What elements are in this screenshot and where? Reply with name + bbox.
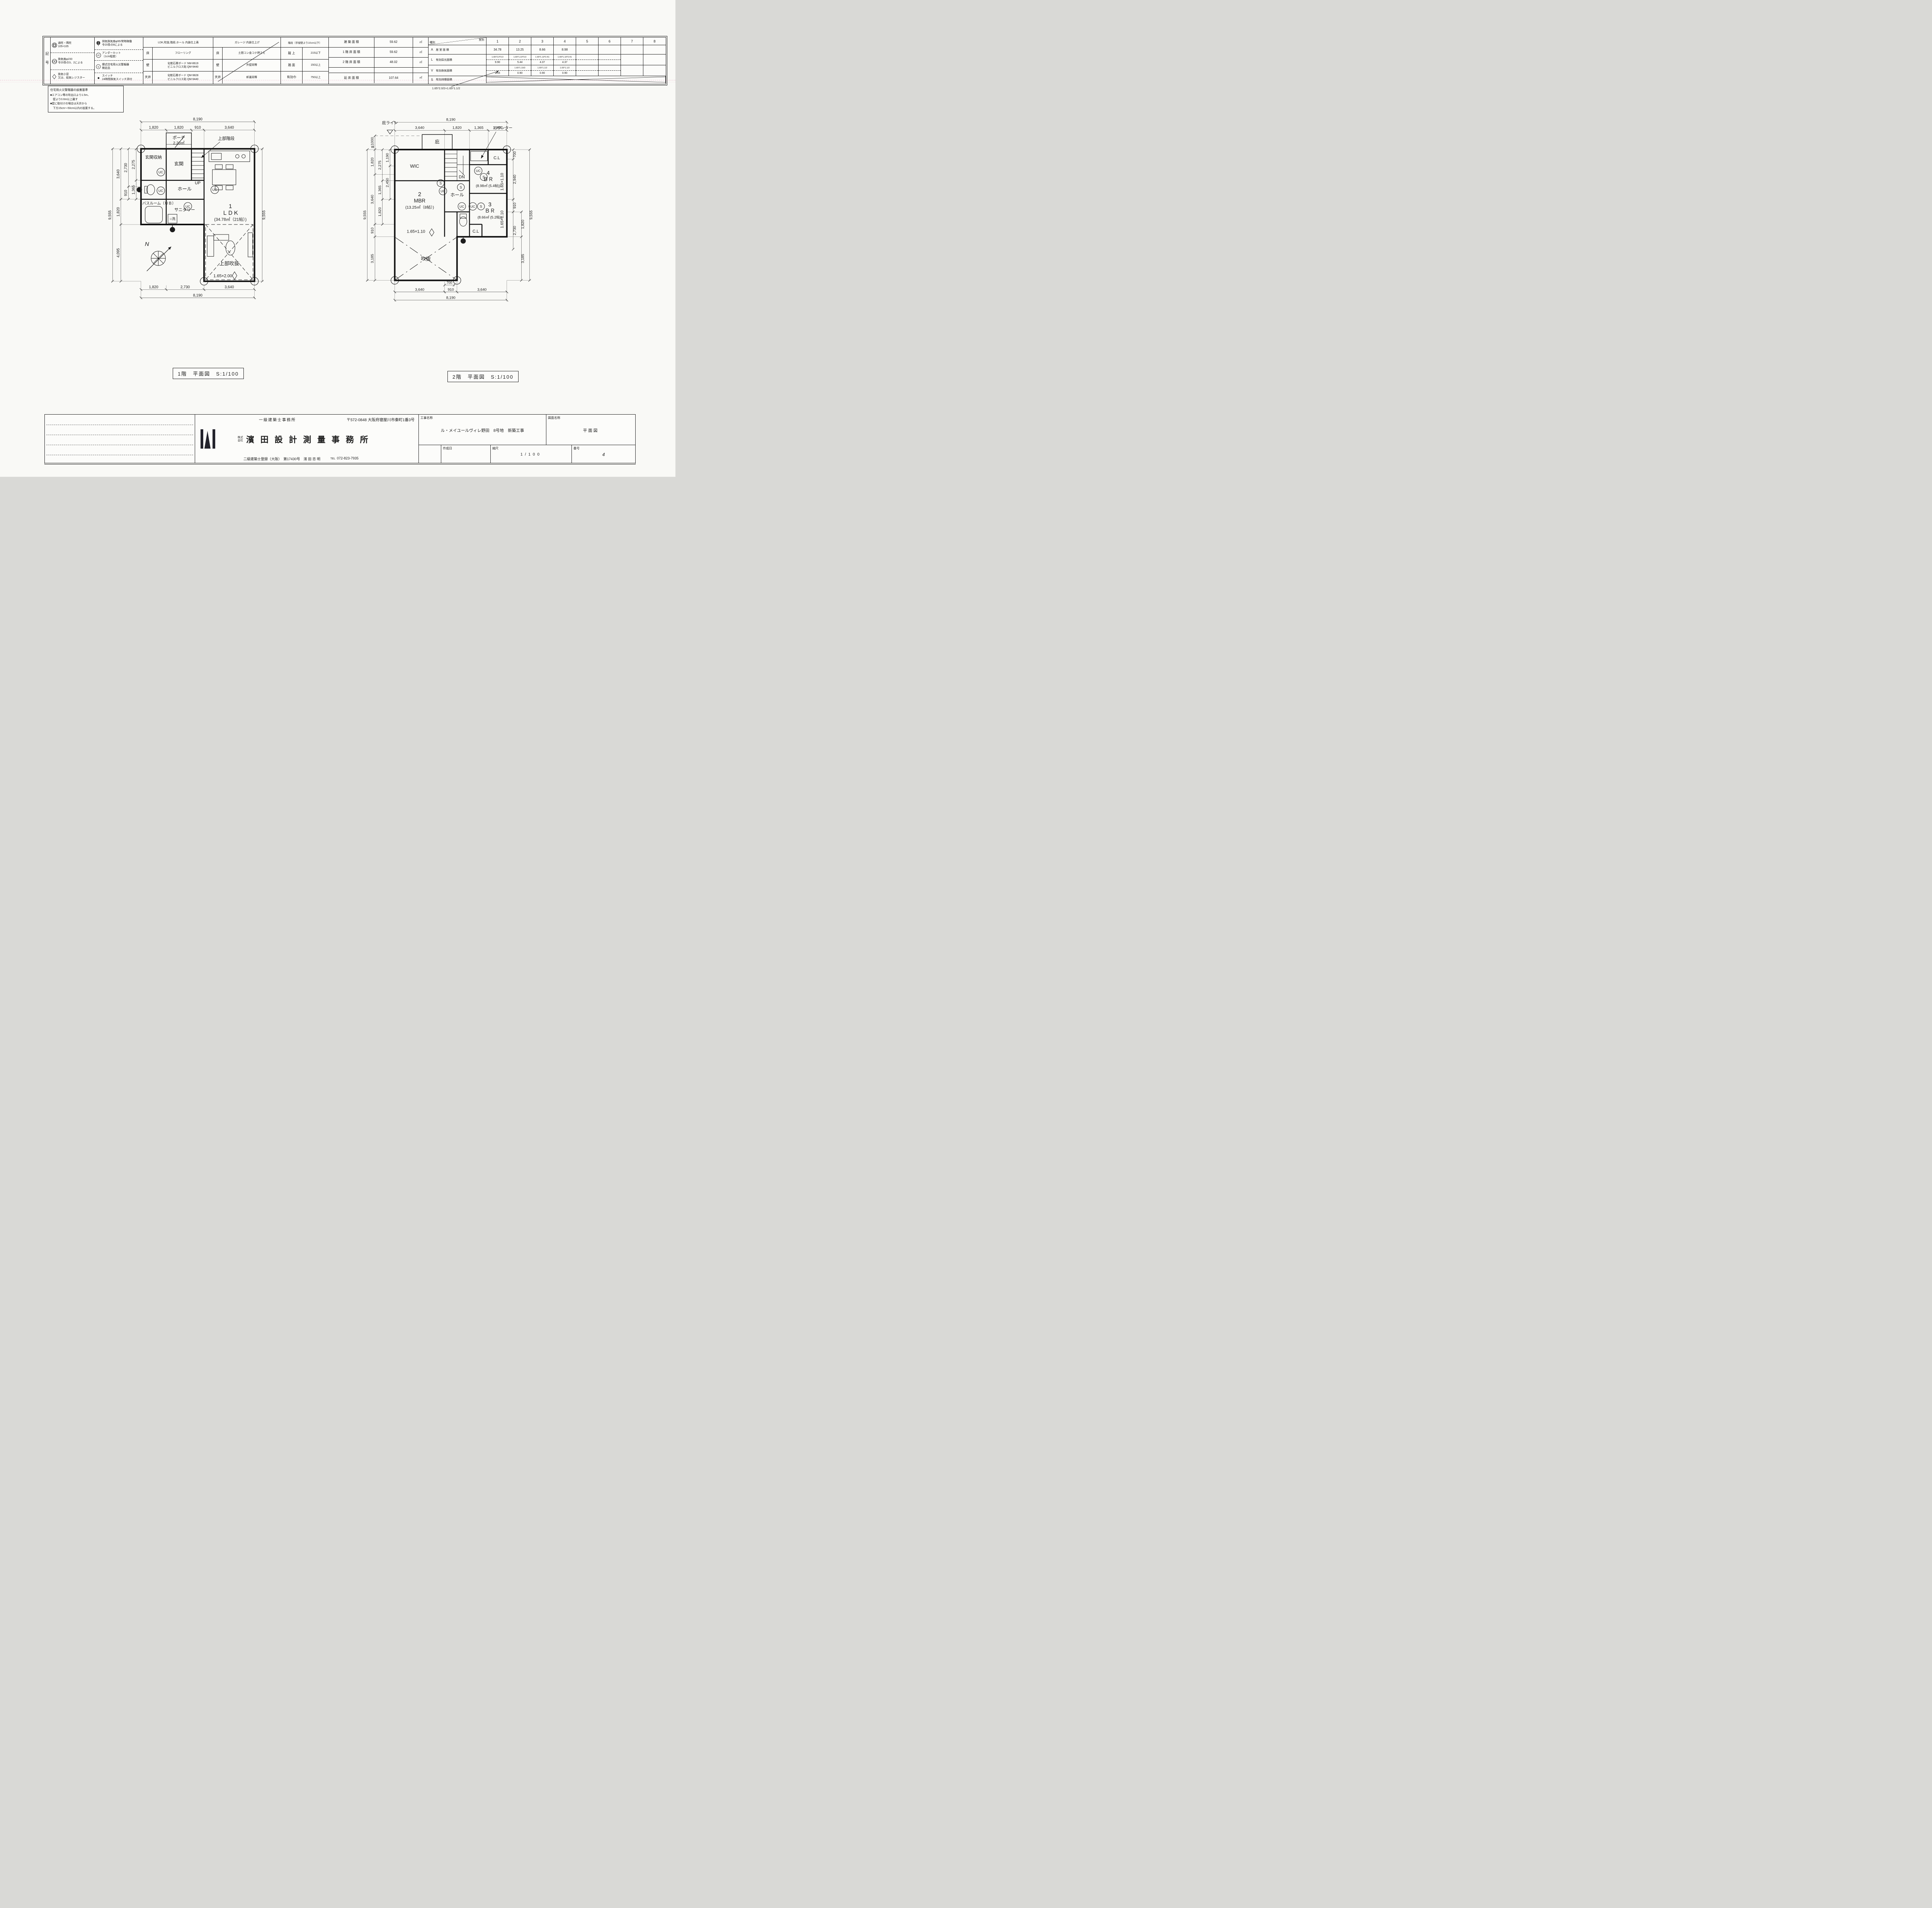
fire-alarm-note-line: ■壁に取付けの場合は天井から [50, 102, 121, 106]
f2-room-labels: 庇ライン 庇 カウンター C.L WIC DN ホール 2 MBR (13.25… [382, 121, 513, 262]
dim-label: 1,820 [370, 157, 374, 167]
area-row-label: 建 築 面 積 [329, 37, 374, 48]
undercut-symbol-icon: UC [458, 202, 466, 210]
header-tables-strip: 記号 通柱・隅柱105×105 換気扇φ150令20条の3、2による [44, 37, 666, 84]
ventilation-cell [621, 65, 643, 76]
dim-label: 910 [370, 228, 374, 234]
stove-burner [236, 155, 239, 158]
vent-window-symbol-icon [429, 229, 434, 236]
room-area-value: 13.25 [509, 45, 531, 54]
ventilation-cell: 1.65*1.1/20.90 [554, 65, 576, 76]
dim-label: 700 [447, 281, 452, 285]
vent-window-symbol-icon [51, 74, 57, 79]
dining-chair [226, 165, 233, 169]
schedule-row-label: A居 室 面 積 [429, 45, 486, 54]
lighting-cell [643, 54, 666, 65]
stairs-row-label: 蹴 上 [281, 48, 303, 60]
finish-row-value: 外壁同等 [223, 60, 281, 71]
dim-label: 1,820 [149, 285, 158, 289]
f1-exhaust-fans [137, 187, 175, 232]
exhaust-fan-icon [170, 227, 175, 232]
drawing-name: 平面図 [546, 427, 635, 433]
legend-text: 換気扇φ150令20条の3、2による [58, 58, 83, 65]
stove-burner [242, 155, 245, 158]
room-label: UP [195, 181, 201, 185]
room-label: 4 [486, 170, 490, 177]
dim-label: 1,820 [452, 126, 462, 130]
dim-label: 1,190 [385, 153, 389, 162]
legend-text: スイッチ24時間換気スイッチ添付 [102, 75, 132, 82]
north-label: N [145, 241, 149, 247]
symbol-legend-table: 記号 通柱・隅柱105×105 換気扇φ150令20条の3、2による [44, 37, 143, 84]
switch-symbol-icon [95, 76, 101, 80]
lighting-cell: 1.65*1.10*2.414.37 [554, 54, 576, 65]
undercut-symbol-icon: UC [474, 167, 482, 175]
lighting-cell [599, 54, 621, 65]
svg-text:UC: UC [470, 204, 475, 208]
room-label: サニタリー [174, 208, 195, 213]
counter [471, 151, 488, 161]
toilet [459, 217, 467, 226]
area-blank [329, 68, 374, 73]
fan150-symbol-icon [51, 59, 57, 64]
legend-column-a: 通柱・隅柱105×105 換気扇φ150令20条の3、2による [51, 37, 95, 84]
room-label: 上部階段 [218, 136, 235, 141]
room-label: ホール [178, 186, 192, 192]
room-label: DN [459, 175, 465, 180]
stair-down-arrow [459, 156, 464, 175]
legend-text: 通柱・隅柱105×105 [58, 42, 71, 49]
dim-label: ≦1000 [370, 137, 374, 148]
dim-label: 8,190 [446, 117, 456, 122]
room-label: 吹抜 [421, 256, 431, 262]
room-label: (13.25㎡（8帖）) [405, 205, 434, 210]
svg-text:UC: UC [158, 189, 163, 193]
dim-label: 9,555 [363, 210, 367, 219]
room-label: ＬＤＫ [222, 210, 239, 216]
room-label: 上部吹抜 [219, 260, 240, 266]
room-label: 庇ライン [382, 121, 398, 126]
company-logo [195, 415, 221, 463]
kind-label: 種別 [430, 41, 435, 44]
room-label: 3 [488, 202, 492, 208]
f1-upper-void [206, 224, 253, 280]
exhaust-fan-icon [461, 238, 466, 243]
finish-row-label: 壁 [213, 60, 223, 71]
stairs-row-label: 踏 面 [281, 60, 303, 71]
exhaust-fan-icon [137, 187, 142, 192]
number-label: 番号 [573, 446, 580, 451]
dim-label: 2,730 [513, 226, 517, 235]
legend-row: 排気換気扇φ95/常時稼働令20条の8による [95, 37, 143, 50]
ldk-finish-title: LDK,吹抜,階段,ホール 内装仕上表 [143, 37, 213, 48]
revision-line [46, 425, 193, 425]
kabushiki-kaisha: 株式会社 [238, 436, 243, 442]
project-name: ル・メイユールヴィレ野田 8号地 新築工事 [419, 427, 546, 433]
title-block: 一級建築士事務所 〒572-0848 大阪府寝屋川市秦町1番3号 株式会社 濱 … [44, 414, 636, 464]
ventilation-cell [643, 65, 666, 76]
smoke-alarm-symbol-icon: S [478, 203, 485, 210]
legend-row: 換気扇φ150令20条の3、2による [51, 53, 94, 70]
number-cell: 番号 4 [572, 445, 635, 463]
created-label: 作成日 [443, 446, 452, 451]
dim-label: 3,640 [224, 285, 234, 289]
dim-label: 2,275 [378, 160, 382, 170]
lighting-cell: 1.65*2.0*3.09.90 [486, 54, 509, 65]
room-label: 2 [418, 192, 421, 198]
room-area-value: 34.78 [486, 45, 509, 54]
dim-label: 1,820 [378, 207, 382, 216]
stairs-row-value: 215以下 [303, 48, 329, 60]
scan-artifact-line [0, 82, 675, 82]
area-row-value: 59.62 [374, 37, 413, 48]
undercut-symbol-icon: UC [439, 187, 447, 195]
company-address: 〒572-0848 大阪府寝屋川市秦町1番3号 [347, 417, 415, 422]
lighting-cell: 1.65*1.10*3.05.44 [509, 54, 531, 65]
kitchen-sink [211, 153, 221, 160]
fire-alarm-note-line: 壁より0.6m以上離す [50, 97, 121, 102]
dim-label: 3,185 [370, 254, 374, 263]
dim-label: 1,820 [116, 207, 121, 216]
fire-alarm-note-line: ■エアコン等の吹出口より1.5m、 [50, 93, 121, 97]
title-block-right: 工事名称 ル・メイユールヴィレ野田 8号地 新築工事 図面名称 平面図 作成日 … [418, 415, 635, 463]
dim-label: 910 [195, 126, 201, 130]
compass [147, 247, 171, 271]
lighting-cell: 1.65*1.10*2.414.37 [531, 54, 554, 65]
ventilation-cell: 1.65*1.1/20.90 [531, 65, 554, 76]
room-area-value [576, 45, 599, 54]
legend-text: 煙式住宅用火災警報器検定品 [102, 63, 129, 70]
area-blank [374, 68, 413, 73]
dim-label: 1,820 [174, 126, 184, 130]
ventilation-cell [599, 65, 621, 76]
svg-text:UC: UC [476, 169, 481, 173]
revision-line [46, 455, 193, 455]
blank-cell [419, 445, 441, 463]
room-label: 庇 [435, 139, 440, 145]
scale-value: 1/100 [491, 452, 571, 457]
finish-row-value: フローリング [153, 48, 213, 60]
ventilation-cell: 1.65*1.10/20.90 [509, 65, 531, 76]
dim-label: 3,640 [415, 126, 424, 130]
drawing-name-cell: 図面名称 平面図 [546, 415, 635, 445]
telephone: TEL072-823-7935 [330, 456, 359, 461]
revision-panel [45, 415, 195, 463]
room-label: カウンター [493, 126, 513, 131]
fire-alarm-note-line: 下方15cm〜50cm以内の設置する。 [50, 106, 121, 111]
schedule-col: 1 [486, 37, 509, 45]
room-label: 1 [229, 203, 232, 210]
window-size-label: 1.65×1.10 [500, 173, 505, 190]
dim-label: 8,190 [193, 294, 202, 298]
legend-row: S 煙式住宅用火災警報器検定品 [95, 61, 143, 73]
revision-line [46, 435, 193, 435]
floor2-plan-drawing: 8,190 3,640 1,820 1,365 1,365 9,555 ≦100… [356, 114, 539, 306]
dim-label: 1,365 [378, 185, 382, 195]
window-size-label: 1.65×1.10 [407, 230, 425, 234]
room-label: 玄関 [174, 161, 184, 167]
ventilation-cell [576, 65, 599, 76]
f2-symbols: S UC S UC S UC [387, 130, 487, 236]
dim-label: 2,275 [131, 160, 136, 169]
drawing-sheet: 記号 通柱・隅柱105×105 換気扇φ150令20条の3、2による [0, 0, 675, 477]
company-name: 濱 田 設 計 測 量 事 務 所 [246, 434, 370, 445]
f2-exhaust-fans [461, 237, 466, 244]
dining-table [213, 170, 236, 185]
registration: 二級建築士登録（大阪） 第17430号 濱 田 忠 明 [243, 456, 320, 461]
undercut-symbol-icon: UC [469, 202, 477, 210]
svg-text:S: S [98, 66, 99, 68]
area-row-unit: ㎡ [413, 58, 429, 68]
dim-label: 2,940 [513, 175, 517, 184]
legend-row: 換気小窓又は、給気レジスター [51, 70, 94, 83]
floor1-plan-drawing: 8,190 1,820 1,820 910 3,640 9,555 3,640 … [104, 114, 278, 306]
office-type: 一級建築士事務所 [259, 417, 296, 422]
fire-alarm-note-title: 住宅用火災警報器の設置基準 [50, 88, 121, 92]
scale-label: 縮尺 [492, 446, 498, 451]
dim-label: 3,640 [415, 287, 424, 292]
room-label: バスルーム（ＵＢ） [142, 201, 176, 206]
toilet [147, 185, 155, 195]
legend-text: アンダーカット（1cm程度） [102, 52, 121, 59]
undercut-symbol-icon: UC [157, 168, 165, 176]
living-table [226, 241, 235, 255]
stairs-table: 階段（手摺壁より10cm以下） 蹴 上 215以下 踏 面 150以上 有効巾 … [281, 37, 329, 84]
room-label: (8.66㎡ (5.2帖)) [478, 215, 502, 219]
undercut-symbol-icon: UC [95, 53, 101, 58]
dim-label: 8,190 [193, 117, 202, 121]
schedule-col: 5 [576, 37, 599, 45]
area-row-label: 2 階 床 面 積 [329, 58, 374, 68]
room-area-value [621, 45, 643, 54]
dim-label: 3,185 [521, 254, 525, 263]
room-label: (34.78㎡（21帖）) [214, 217, 247, 222]
svg-text:UC: UC [158, 170, 163, 174]
room-area-value: 8.66 [531, 45, 554, 54]
dim-label: 3,640 [224, 126, 234, 130]
area-row-label: 1 階 床 面 積 [329, 48, 374, 58]
dim-label: 8,190 [446, 296, 456, 300]
window-size-label: 1.65×1.10 [500, 211, 505, 228]
vent-window-symbol-icon [232, 272, 237, 279]
room-label: C.L [473, 229, 479, 234]
room-label: ホール [451, 192, 464, 197]
room-area-value [643, 45, 666, 54]
sofa [214, 235, 229, 240]
finish-row-label: 床 [213, 48, 223, 60]
room-label: 玄関収納 [145, 155, 162, 160]
lighting-cell [576, 54, 599, 65]
room-number-label: 室別 [479, 38, 484, 42]
room-label: MBR [414, 198, 425, 204]
svg-text:S: S [480, 205, 482, 209]
legend-row: UC アンダーカット（1cm程度） [95, 50, 143, 61]
project-label: 工事名称 [420, 416, 433, 420]
dim-label: 2,730 [180, 285, 190, 289]
finish-row-label: 壁 [143, 60, 153, 71]
dim-label: 910 [448, 287, 454, 292]
room-area-value [599, 45, 621, 54]
floor1-caption: 1階 平面図 S:1/100 [173, 368, 244, 379]
smoke-alarm-symbol-icon: S [457, 184, 464, 190]
svg-text:UC: UC [212, 188, 217, 192]
dim-label: 3,640 [477, 287, 486, 292]
schedule-col: 6 [599, 37, 621, 45]
annotation-leader-line [444, 69, 506, 87]
room-area-value: 8.98 [554, 45, 576, 54]
undercut-symbol-icon: UC [157, 187, 165, 194]
dim-label: 910 [513, 202, 517, 209]
room-label: (8.98㎡ (5.4帖)) [476, 184, 500, 188]
f2-dimension-labels: 8,190 3,640 1,820 1,365 1,365 9,555 ≦100… [363, 117, 533, 300]
svg-text:S: S [439, 181, 442, 185]
garage-finish-title: ガレージ 内装仕上げ [213, 37, 281, 48]
ldk-finish-table: LDK,吹抜,階段,ホール 内装仕上表 床 フローリング 壁 化粧石膏ボード N… [143, 37, 213, 84]
sofa [207, 236, 214, 256]
dim-label: 9,555 [108, 210, 112, 219]
schedule-row-label: L有効採光面積 [429, 54, 486, 65]
building-area-table: 建 築 面 積 59.62 ㎡ 1 階 床 面 積 59.62 ㎡ 2 階 床 … [329, 37, 429, 84]
svg-text:UC: UC [440, 189, 445, 193]
bathtub [145, 206, 163, 223]
legend-text: 換気小窓又は、給気レジスター [58, 73, 85, 80]
tv-board [248, 233, 253, 257]
dim-label: 3,640 [116, 169, 121, 179]
stairs-row-value: 150以上 [303, 60, 329, 71]
kitchen-counter [209, 151, 250, 162]
dim-label: 700 [513, 151, 517, 158]
room-label: ＢＲ [485, 208, 495, 214]
hamada-logo-icon [200, 428, 216, 450]
dim-label: 2,730 [124, 163, 128, 172]
schedule-col: 7 [621, 37, 643, 45]
f2-fixtures [459, 151, 487, 226]
scale-cell: 縮尺 1/100 [491, 445, 572, 463]
svg-text:UC: UC [459, 204, 464, 208]
finish-row-value: 土間コン金コテ押さえ [223, 48, 281, 60]
legend-column-b: 排気換気扇φ95/常時稼働令20条の8による UC アンダーカット（1cm程度）… [95, 37, 143, 84]
dim-label: 1,820 [521, 220, 525, 229]
room-label: ＢＲ [483, 177, 493, 182]
number-value: 4 [572, 452, 635, 457]
svg-text:UC: UC [97, 54, 100, 57]
dim-label: 1,365 [131, 185, 136, 194]
room-label: ポーチ [173, 136, 185, 140]
schedule-col: 2 [509, 37, 531, 45]
area-row-value: 59.62 [374, 48, 413, 58]
svg-text:S: S [460, 185, 462, 189]
dim-label: 3,640 [370, 195, 374, 204]
project-name-cell: 工事名称 ル・メイユールヴィレ野田 8号地 新築工事 [419, 415, 546, 445]
dim-label: 1,365 [474, 126, 483, 130]
area-row-unit: ㎡ [413, 37, 429, 48]
dim-label: 9,555 [262, 210, 266, 219]
scan-artifact-line [0, 80, 675, 80]
dim-label: 9,555 [529, 210, 533, 219]
leader-arrowhead [481, 155, 484, 158]
room-label: WIC [410, 163, 419, 169]
room-label: C.L [493, 156, 500, 160]
room-label: 2.20㎡ [173, 141, 185, 145]
post-symbol-icon [51, 43, 57, 48]
created-date-cell: 作成日 [441, 445, 491, 463]
dining-chair [215, 165, 223, 169]
room-label: ○洗 [170, 217, 176, 221]
legend-title: 記号 [44, 37, 51, 84]
dim-label: 910 [124, 190, 128, 196]
schedule-corner-cell: 種別 室別 [429, 37, 486, 45]
dim-label: 2,450 [385, 178, 389, 187]
stairs-title: 階段（手摺壁より10cm以下） [281, 37, 329, 48]
eave-line-marker [387, 130, 393, 134]
area-row-value: 48.02 [374, 58, 413, 68]
drawing-label: 図面名称 [548, 416, 560, 420]
area-row-unit: ㎡ [413, 48, 429, 58]
smoke-alarm-symbol-icon: S [95, 64, 101, 69]
dim-label: 1,820 [149, 126, 158, 130]
dim-label: 4,095 [116, 248, 121, 257]
fire-alarm-note: 住宅用火災警報器の設置基準 ■エアコン等の吹出口より1.5m、 壁より0.6m以… [48, 86, 124, 112]
dining-chair [226, 185, 233, 190]
schedule-col: 8 [643, 37, 666, 45]
schedule-col: 4 [554, 37, 576, 45]
finish-row-value: 化粧石膏ボード NM-8619ビニルクロス貼 QM-9440 [153, 60, 213, 71]
legend-row: 通柱・隅柱105×105 [51, 37, 94, 53]
legend-text: 排気換気扇φ95/常時稼働令20条の8による [102, 40, 132, 47]
floor2-caption: 2階 平面図 S:1/100 [447, 371, 519, 382]
company-panel: 一級建築士事務所 〒572-0848 大阪府寝屋川市秦町1番3号 株式会社 濱 … [221, 415, 418, 463]
schedule-col: 3 [531, 37, 554, 45]
lighting-cell [621, 54, 643, 65]
area-blank [413, 68, 429, 73]
exhaust-fan-symbol-icon [95, 41, 101, 46]
window-size-label: 1.65×2.00 [213, 274, 232, 278]
garage-finish-table: ガレージ 内装仕上げ 床 土間コン金コテ押さえ 壁 外壁同等 天井 軒裏同等 [213, 37, 281, 84]
revision-line [46, 445, 193, 445]
finish-row-label: 床 [143, 48, 153, 60]
